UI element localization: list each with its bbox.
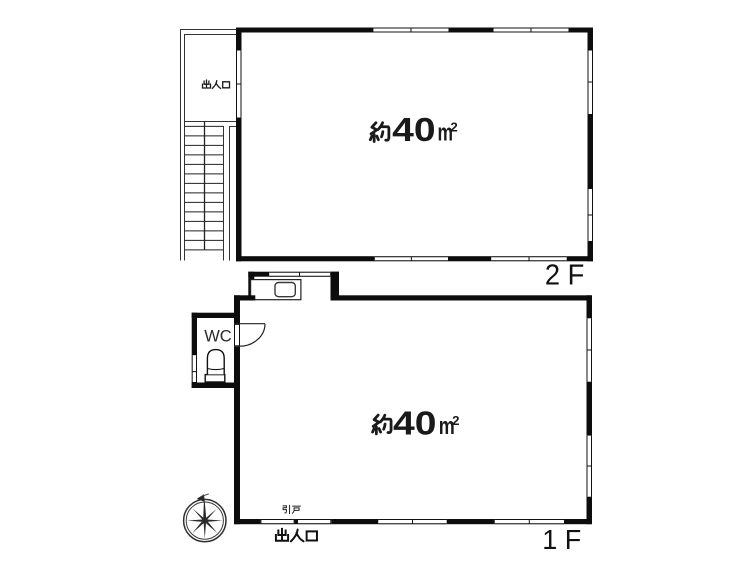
- svg-text:2: 2: [452, 413, 459, 428]
- svg-text:W: W: [204, 328, 220, 346]
- svg-text:1 F: 1 F: [542, 524, 581, 555]
- svg-text:40: 40: [392, 111, 436, 148]
- svg-text:2: 2: [451, 120, 458, 135]
- svg-text:C: C: [220, 328, 232, 346]
- svg-text:40: 40: [393, 404, 437, 441]
- svg-text:2 F: 2 F: [545, 259, 585, 291]
